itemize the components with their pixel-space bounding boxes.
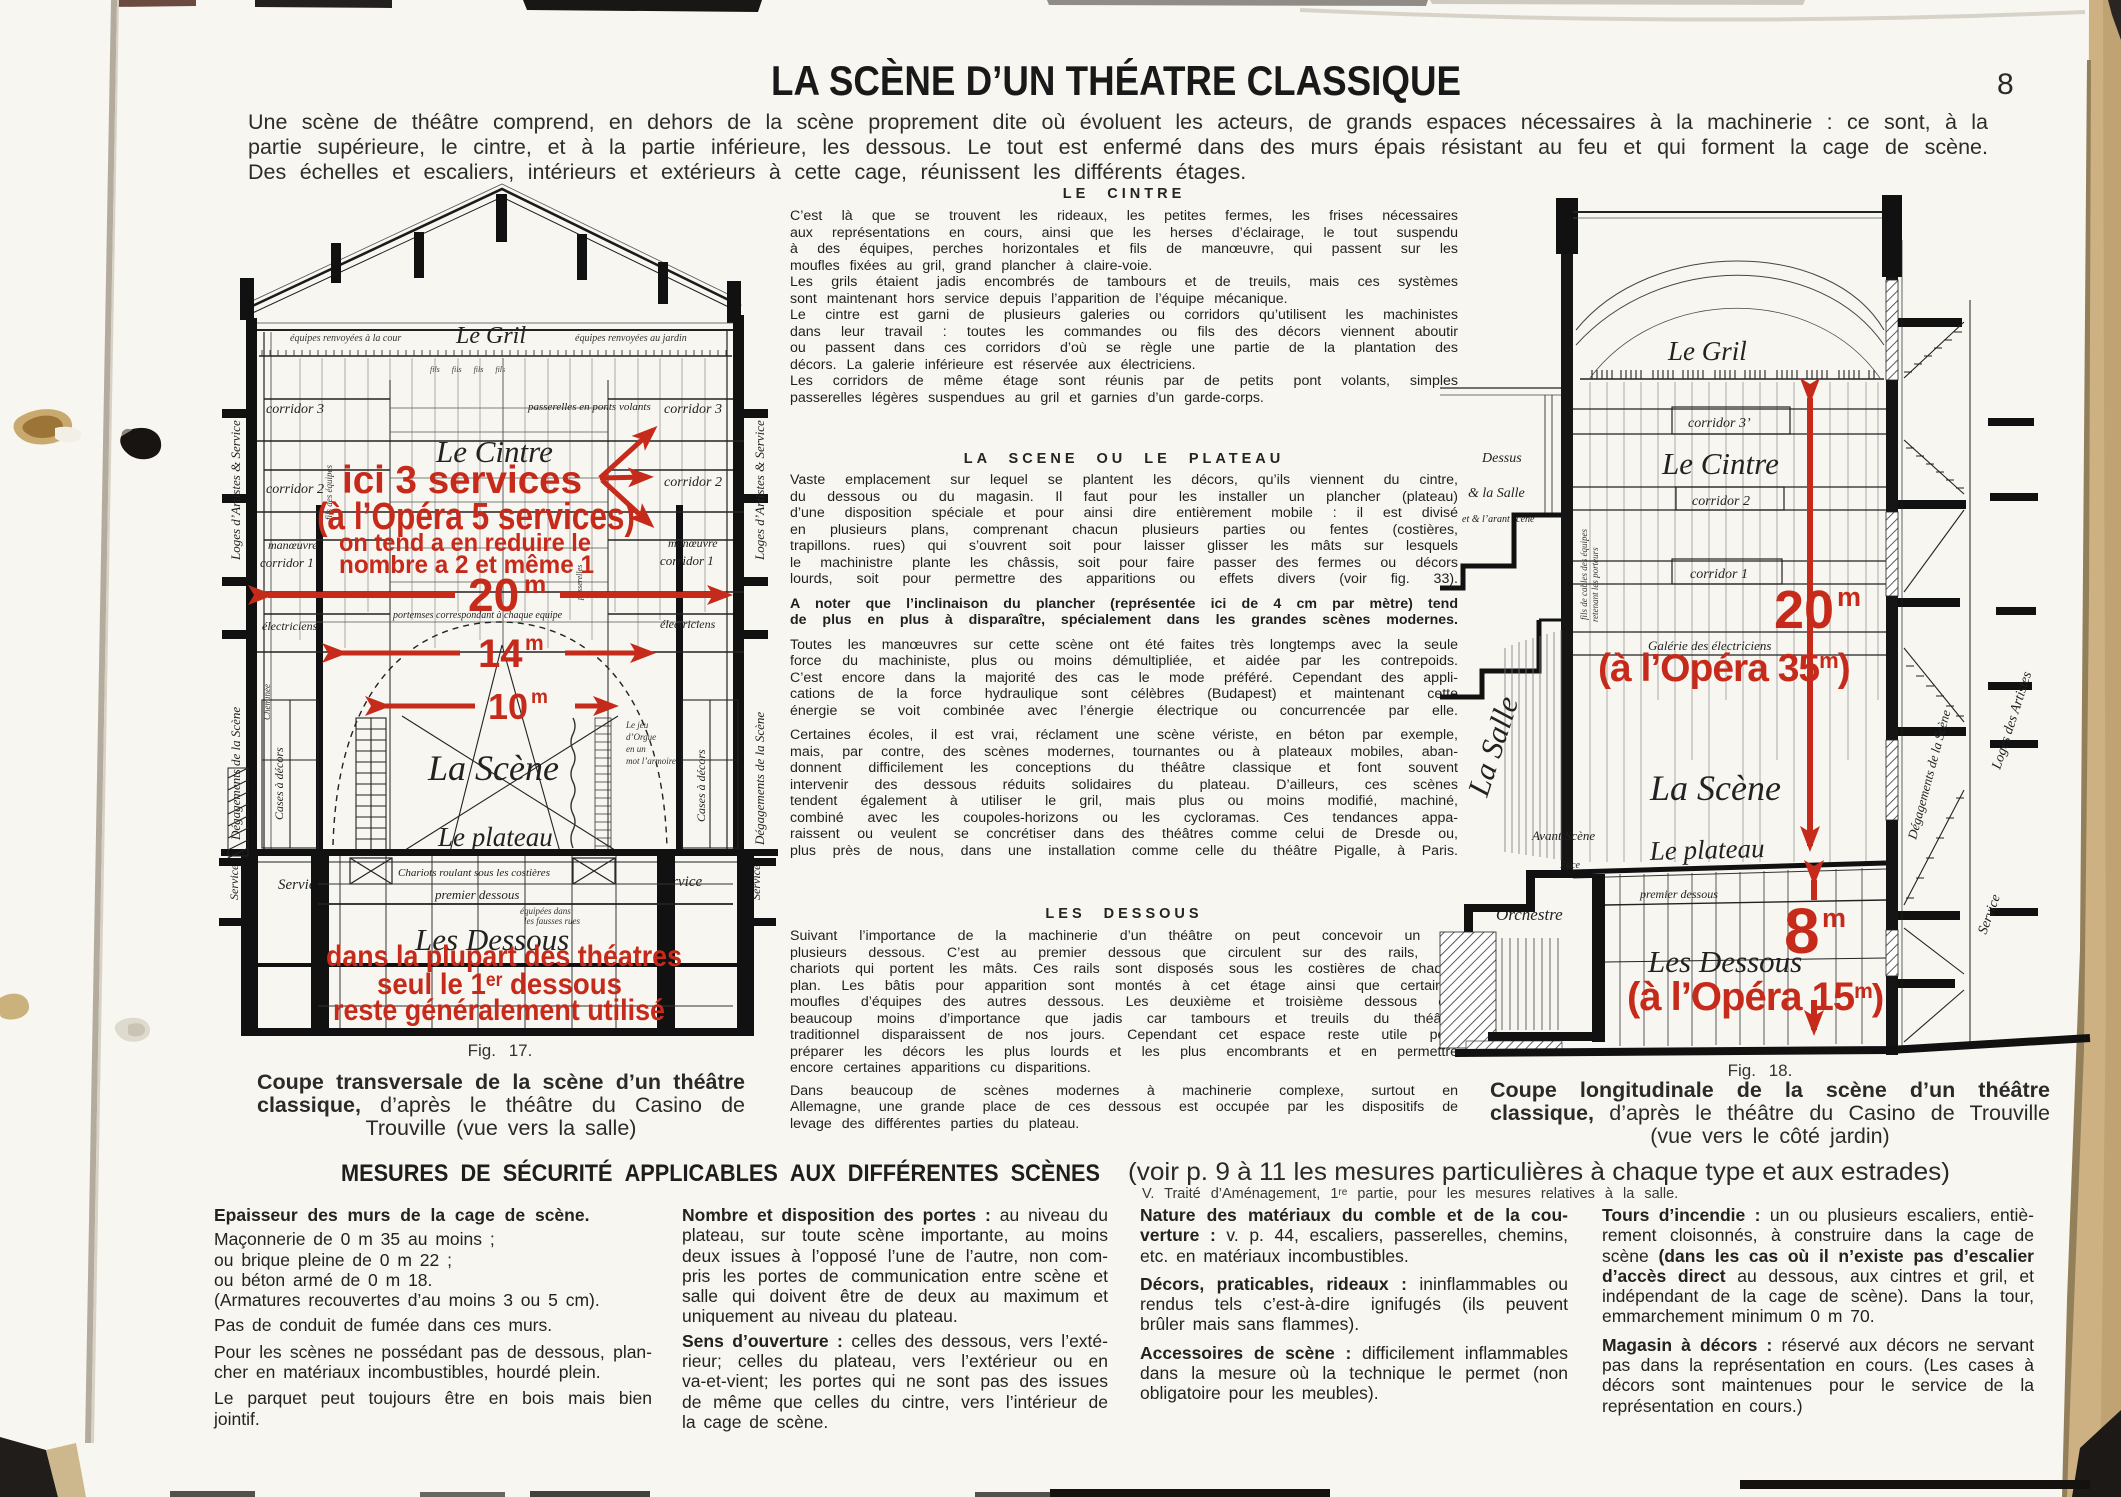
svg-text:m: m [531,687,548,708]
svg-text:m: m [525,632,544,655]
svg-text:(à l’Opéra 35m): (à l’Opéra 35m) [1598,647,1850,690]
svg-text:Le jeu: Le jeu [625,720,649,730]
svg-text:La Scène: La Scène [427,748,559,788]
svg-text:équipes renvoyées au jardin: équipes renvoyées au jardin [575,333,687,344]
svg-text:Cases à décors: Cases à décors [272,747,286,820]
svg-text:corridor 2: corridor 2 [1692,494,1750,509]
svg-text:manœuvre: manœuvre [268,538,318,552]
svg-text:corridor 1: corridor 1 [260,555,314,570]
svg-text:Face: Face [1559,860,1581,871]
svg-text:en un: en un [626,744,646,754]
svg-text:corridor 3: corridor 3 [266,402,324,417]
svg-text:fils fils fils: fils fils fils fils [430,365,505,374]
svg-text:LA SCÈNE D’UN THÉATRE CLASSIQU: LA SCÈNE D’UN THÉATRE CLASSIQUE [771,57,1461,104]
svg-text:d’Orgue: d’Orgue [626,732,656,742]
svg-text:Le plateau: Le plateau [1648,833,1764,866]
svg-text:20: 20 [1774,580,1834,640]
svg-text:Dégagements de la Scène: Dégagements de la Scène [752,712,767,846]
svg-text:(à l’Opéra 15m): (à l’Opéra 15m) [1627,975,1883,1019]
svg-text:La Salle: La Salle [1460,692,1525,801]
svg-text:Avant.Scène: Avant.Scène [1531,828,1595,843]
svg-text:passerelles en ponts volants: passerelles en ponts volants [527,401,651,413]
svg-text:Cheminée: Cheminée [262,684,272,720]
svg-text:manœuvre: manœuvre [668,536,718,550]
svg-text:premier dessous: premier dessous [1639,887,1718,901]
svg-text:Dessus: Dessus [1481,451,1522,466]
svg-text:mot l’armoire: mot l’armoire [626,756,676,766]
svg-text:corridor 1: corridor 1 [660,553,714,568]
svg-text:reste généralement utilisé: reste généralement utilisé [333,994,665,1027]
svg-text:(voir p. 9 à 11 les mesures pa: (voir p. 9 à 11 les mesures particulière… [1128,1158,1950,1186]
svg-text:équipes renvoyées à la cour: équipes renvoyées à la cour [290,333,401,344]
svg-text:8: 8 [1784,895,1820,967]
svg-text:électriciens: électriciens [660,617,716,631]
svg-text:m: m [1837,582,1861,612]
svg-text:corridor 1: corridor 1 [1690,567,1748,582]
svg-text:retenant les porteurs: retenant les porteurs [1590,547,1600,622]
svg-text:Cases à décors: Cases à décors [694,749,708,822]
svg-text:Loges d’Artistes & Service: Loges d’Artistes & Service [228,420,243,561]
svg-text:Loges d’Artistes & Service: Loges d’Artistes & Service [752,420,767,561]
svg-text:corridor 3: corridor 3 [664,402,722,417]
svg-text:MESURES DE SÉCURITÉ APPLICA: MESURES DE SÉCURITÉ APPLICABLES AUX DIFF… [341,1159,1100,1187]
svg-text:premier dessous: premier dessous [434,887,519,902]
svg-text:Les Dessous: Les Dessous [1647,944,1802,979]
svg-text:La Scène: La Scène [1649,768,1781,808]
svg-text:m: m [524,571,546,599]
svg-text:m: m [1822,903,1846,933]
svg-text:équipées dans: équipées dans [520,906,571,916]
svg-text:corridor 3’: corridor 3’ [1688,416,1751,431]
svg-text:Le Cintre: Le Cintre [1661,446,1779,481]
svg-text:corridor 2: corridor 2 [664,475,722,490]
svg-text:10: 10 [488,686,528,727]
svg-text:Le plateau: Le plateau [437,822,553,852]
svg-text:nombre a 2 et même 1: nombre a 2 et même 1 [339,551,594,579]
svg-text:Le Gril: Le Gril [1667,336,1747,366]
svg-text:20: 20 [468,569,519,621]
svg-text:14: 14 [478,632,523,676]
svg-text:électriciens: électriciens [262,619,318,633]
svg-text:Dégagements de la Scène: Dégagements de la Scène [228,707,243,841]
svg-text:& la Salle: & la Salle [1468,486,1525,501]
svg-text:Service: Service [227,864,241,900]
svg-text:Chariots roulant sous les cost: Chariots roulant sous les costières [398,867,550,879]
svg-text:fils de cables des équipes: fils de cables des équipes [1579,529,1589,620]
svg-text:corridor 2: corridor 2 [266,482,324,497]
svg-text:Le Gril: Le Gril [455,323,526,349]
